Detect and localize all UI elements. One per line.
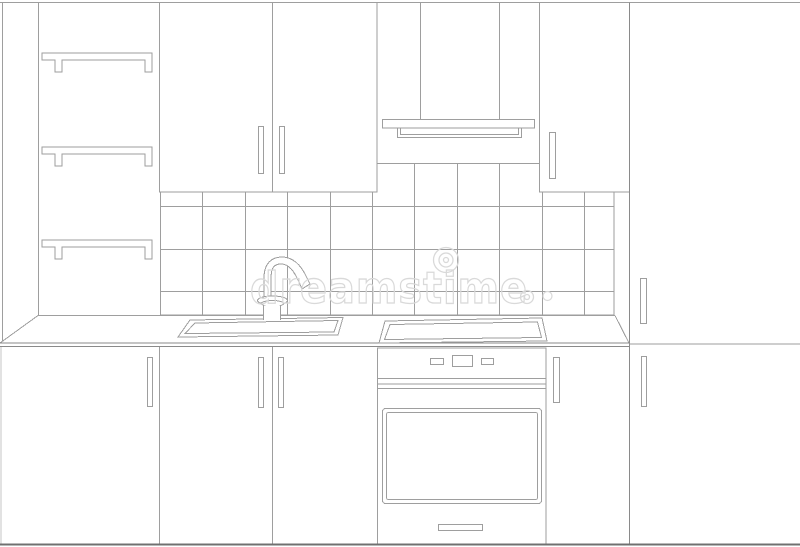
wall-shelf-top <box>42 53 152 72</box>
base-cabinet-handle-1 <box>148 358 153 407</box>
tall-cabinet-handle-lower <box>642 357 647 407</box>
watermark: dreamstime <box>250 248 552 315</box>
wall-cabinet-right <box>540 3 630 193</box>
cooker-hood <box>383 3 535 138</box>
oven-body <box>378 348 547 545</box>
wall-shelf-middle <box>42 147 152 166</box>
kitchen-sketch-canvas: dreamstime <box>0 0 800 547</box>
wall-shelves <box>42 53 152 259</box>
base-cabinet-handle-4 <box>554 358 560 403</box>
sink <box>178 318 343 338</box>
watermark-text: dreamstime <box>250 263 528 314</box>
hood-filter-outer <box>398 128 522 138</box>
cooktop <box>379 318 547 343</box>
tall-cabinet-handle-upper <box>641 279 647 324</box>
hood-canopy <box>383 120 535 129</box>
wall-cabinet-left-handle-1 <box>259 127 264 174</box>
wall-cabinet-left-handle-2 <box>280 127 285 174</box>
wall-shelf-bottom <box>42 240 152 259</box>
wall-cabinet-left-body <box>160 3 378 193</box>
base-cabinet-handle-3 <box>279 358 284 408</box>
wall-cabinet-left <box>160 3 378 193</box>
base-cabinet-handle-2 <box>259 358 264 408</box>
tall-cabinet <box>630 3 800 546</box>
kitchen-line-drawing: dreamstime <box>0 0 800 547</box>
oven <box>378 348 547 545</box>
wall-cabinet-right-handle <box>550 133 556 179</box>
